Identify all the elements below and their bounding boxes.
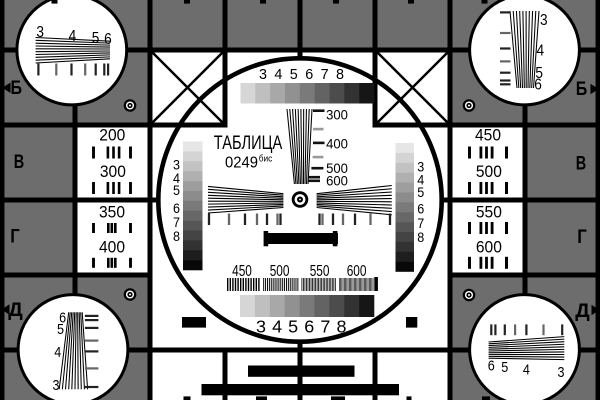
- svg-text:Д: Д: [8, 300, 23, 321]
- svg-text:6: 6: [173, 201, 180, 216]
- svg-text:8: 8: [417, 230, 424, 245]
- svg-text:В: В: [576, 154, 587, 175]
- svg-text:6: 6: [534, 76, 542, 93]
- svg-text:5: 5: [290, 67, 298, 83]
- svg-text:550: 550: [476, 204, 502, 222]
- svg-text:200: 200: [99, 127, 125, 145]
- svg-text:3: 3: [540, 12, 548, 29]
- svg-text:300: 300: [100, 163, 126, 181]
- svg-text:500: 500: [476, 163, 502, 181]
- svg-text:7: 7: [417, 216, 424, 231]
- svg-text:550: 550: [310, 263, 330, 280]
- svg-text:500: 500: [270, 263, 290, 280]
- svg-text:400: 400: [99, 238, 125, 256]
- svg-text:3: 3: [259, 67, 267, 83]
- svg-text:0249: 0249: [225, 154, 258, 171]
- svg-text:3: 3: [256, 317, 266, 337]
- svg-text:4: 4: [54, 345, 61, 361]
- svg-text:300: 300: [326, 107, 348, 122]
- svg-text:4: 4: [523, 362, 530, 378]
- svg-text:600: 600: [326, 174, 348, 189]
- svg-text:4: 4: [69, 28, 77, 45]
- svg-text:5: 5: [288, 317, 298, 337]
- svg-text:4: 4: [537, 43, 545, 60]
- svg-text:Б: Б: [10, 78, 22, 99]
- svg-text:600: 600: [347, 263, 367, 280]
- svg-text:5: 5: [57, 322, 64, 338]
- svg-text:5: 5: [92, 30, 100, 47]
- svg-text:450: 450: [232, 263, 252, 280]
- svg-text:3: 3: [558, 365, 565, 381]
- svg-text:8: 8: [337, 317, 347, 337]
- svg-text:450: 450: [475, 127, 501, 145]
- svg-text:Г: Г: [577, 227, 587, 248]
- svg-text:Д: Д: [575, 301, 590, 322]
- svg-text:3: 3: [53, 378, 60, 394]
- svg-text:8: 8: [336, 67, 344, 83]
- svg-text:3: 3: [36, 24, 44, 41]
- svg-text:7: 7: [320, 317, 330, 337]
- svg-text:6: 6: [417, 202, 424, 217]
- svg-text:7: 7: [321, 67, 329, 83]
- svg-text:Б: Б: [576, 79, 588, 100]
- svg-text:350: 350: [99, 204, 125, 222]
- svg-text:4: 4: [272, 317, 282, 337]
- svg-text:8: 8: [173, 229, 180, 244]
- svg-text:4: 4: [274, 67, 282, 83]
- svg-text:400: 400: [326, 137, 348, 152]
- svg-text:бис: бис: [259, 154, 273, 164]
- svg-text:6: 6: [304, 317, 314, 337]
- svg-text:6: 6: [305, 67, 313, 83]
- svg-text:600: 600: [476, 238, 502, 256]
- svg-text:5: 5: [501, 360, 508, 376]
- svg-text:ТАБЛИЦА: ТАБЛИЦА: [214, 133, 283, 154]
- svg-text:5: 5: [417, 185, 424, 200]
- svg-text:В: В: [14, 152, 25, 173]
- svg-text:5: 5: [173, 183, 180, 198]
- svg-text:6: 6: [104, 31, 112, 48]
- svg-text:7: 7: [173, 215, 180, 230]
- svg-text:6: 6: [488, 358, 495, 374]
- svg-text:Г: Г: [10, 227, 20, 248]
